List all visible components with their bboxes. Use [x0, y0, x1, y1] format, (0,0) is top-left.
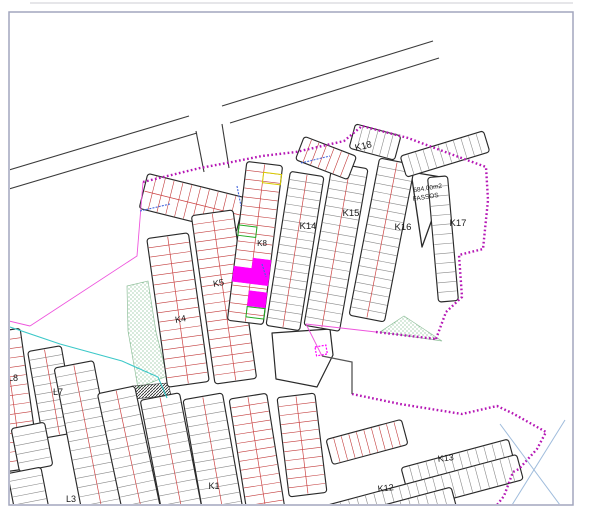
branch-road-left-edge: [196, 131, 204, 172]
selected-parcel-magenta[interactable]: [232, 266, 252, 283]
parcel-boundary-thin: [9, 321, 30, 326]
block-outline: [7, 467, 48, 513]
lot-divider: [323, 507, 329, 518]
parcel-boundary-thin: [30, 182, 143, 326]
label-K14: K14: [300, 221, 317, 232]
highway-lower-edge-east: [230, 58, 439, 123]
label-L3: L3: [66, 494, 76, 504]
blue-reference-line: [512, 420, 565, 505]
branch-road-right-edge: [222, 124, 229, 168]
block-outline: [400, 131, 490, 177]
block-top-right-row[interactable]: [400, 131, 490, 177]
street-junction-area: [272, 329, 333, 387]
selected-parcel-magenta[interactable]: [247, 291, 267, 308]
cad-drawing-viewport: K18K15K14K16K17K8K5K4684.00m2FASSOSL8L7L…: [0, 0, 600, 518]
block-small-b[interactable]: [7, 467, 48, 513]
block-band-8[interactable]: [277, 393, 327, 497]
highway-upper-edge-east: [222, 41, 433, 106]
label-L7: L7: [53, 387, 63, 397]
lot-divider: [392, 504, 398, 518]
park-south-triangle: [380, 316, 442, 341]
label-K17: K17: [450, 218, 467, 229]
label-K8: K8: [257, 239, 267, 248]
label-K16: K16: [395, 222, 412, 233]
lot-divider: [375, 508, 381, 518]
lot-divider: [383, 506, 389, 518]
label-K13: K13: [437, 452, 454, 464]
drawing-canvas[interactable]: K18K15K14K16K17K8K5K4684.00m2FASSOSL8L7L…: [0, 0, 600, 518]
label-K1: K1: [208, 481, 219, 491]
block-K13-left[interactable]: [326, 419, 408, 464]
lot-divider: [366, 511, 372, 518]
selected-parcel-magenta[interactable]: [250, 258, 271, 286]
lot-divider: [332, 505, 338, 518]
label-K15: K15: [343, 208, 360, 219]
lot-divider: [358, 513, 364, 518]
label-K5: K5: [212, 277, 225, 289]
road-network: [9, 41, 439, 189]
label-K12: K12: [377, 482, 394, 494]
label-K4: K4: [174, 313, 187, 325]
